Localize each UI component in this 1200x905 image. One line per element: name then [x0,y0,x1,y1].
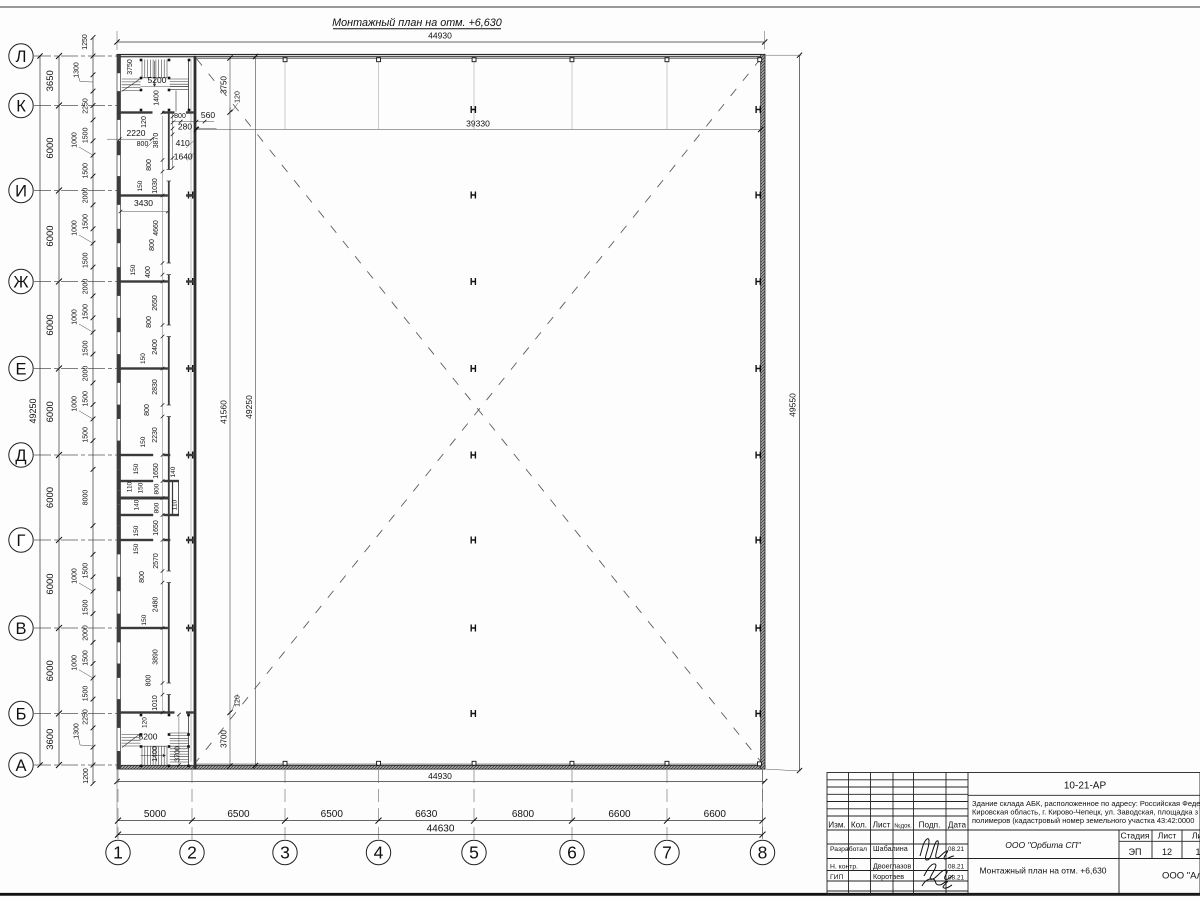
svg-text:120: 120 [235,91,242,103]
svg-text:2220: 2220 [127,128,146,138]
svg-text:1500: 1500 [82,304,89,320]
svg-text:120: 120 [141,116,148,128]
svg-text:1500: 1500 [82,252,89,268]
svg-text:ГИП: ГИП [830,874,844,881]
svg-text:280: 280 [178,122,192,132]
svg-text:8000: 8000 [82,490,89,506]
svg-text:150: 150 [133,525,140,536]
svg-text:Д: Д [15,447,26,465]
svg-text:6800: 6800 [512,809,535,820]
svg-text:А: А [15,757,26,775]
svg-text:5200: 5200 [148,75,167,85]
svg-text:6: 6 [567,843,577,863]
svg-text:2480: 2480 [153,597,160,613]
svg-text:Г: Г [17,532,26,550]
svg-text:1500: 1500 [82,391,89,407]
svg-text:1000: 1000 [72,132,79,148]
svg-text:150: 150 [137,180,144,191]
svg-text:1500: 1500 [82,600,89,616]
svg-text:800: 800 [137,141,149,148]
svg-text:49550: 49550 [788,393,798,417]
svg-text:Подп.: Подп. [919,821,941,830]
svg-text:Монтажный план на отм. +6,630: Монтажный план на отм. +6,630 [979,866,1106,876]
svg-text:800: 800 [154,502,161,513]
svg-text:Лист: Лист [1158,831,1177,841]
svg-text:140: 140 [170,466,177,477]
svg-text:120: 120 [142,717,149,728]
svg-text:1500: 1500 [82,163,89,179]
svg-text:44930: 44930 [428,31,452,41]
svg-text:1400: 1400 [154,90,161,106]
svg-text:Разработал: Разработал [830,845,867,853]
svg-text:1500: 1500 [82,563,89,579]
svg-text:39330: 39330 [466,119,490,129]
svg-text:1500: 1500 [82,686,89,702]
svg-text:08.21: 08.21 [948,864,965,871]
svg-text:6000: 6000 [45,660,56,681]
svg-text:1640: 1640 [174,152,193,162]
svg-text:800: 800 [146,316,153,328]
svg-text:800: 800 [149,239,156,251]
svg-text:150: 150 [138,482,145,493]
svg-text:2000: 2000 [82,188,89,204]
svg-text:3750: 3750 [127,59,134,75]
svg-text:1000: 1000 [72,220,79,236]
svg-text:Шабалина: Шабалина [873,844,908,853]
svg-text:1500: 1500 [82,650,89,666]
svg-text:110: 110 [127,481,134,492]
svg-text:1: 1 [1195,847,1200,857]
svg-text:ЭП: ЭП [1129,847,1142,857]
svg-text:3650: 3650 [45,70,56,91]
svg-text:8: 8 [758,843,768,863]
svg-text:1500: 1500 [82,214,89,230]
svg-text:44930: 44930 [428,771,452,781]
svg-text:10-21-АР: 10-21-АР [1064,781,1107,792]
svg-text:1: 1 [113,843,123,863]
svg-text:150: 150 [141,614,148,625]
svg-text:2570: 2570 [153,553,160,569]
svg-text:800: 800 [146,675,153,687]
svg-text:150: 150 [133,463,140,474]
svg-text:Б: Б [16,705,27,723]
svg-text:Кол.: Кол. [851,821,867,830]
svg-text:И: И [15,182,27,200]
svg-text:5: 5 [469,843,479,863]
svg-text:Лист: Лист [873,821,891,830]
svg-text:2: 2 [187,843,197,863]
svg-text:1650: 1650 [153,463,160,479]
svg-text:1010: 1010 [152,695,159,711]
svg-text:1000: 1000 [72,396,79,412]
svg-text:Дата: Дата [948,821,967,830]
svg-text:Н. контр.: Н. контр. [830,864,858,871]
svg-text:49250: 49250 [244,395,254,419]
svg-text:6600: 6600 [608,809,631,820]
svg-text:3430: 3430 [134,198,153,208]
svg-text:6000: 6000 [45,225,56,246]
svg-text:4: 4 [374,843,384,863]
svg-text:800: 800 [146,159,153,171]
svg-text:Монтажный план на отм. +6,630: Монтажный план на отм. +6,630 [332,17,502,29]
svg-text:6000: 6000 [45,314,56,335]
svg-text:150: 150 [140,436,147,447]
svg-text:7: 7 [662,843,672,863]
svg-text:5200: 5200 [139,732,158,742]
svg-text:150: 150 [140,353,147,364]
svg-text:140: 140 [134,499,141,510]
svg-text:1300: 1300 [74,723,81,739]
svg-text:6630: 6630 [415,809,438,820]
svg-text:6000: 6000 [45,573,56,594]
svg-text:560: 560 [201,110,215,120]
svg-text:Изм.: Изм. [828,821,846,830]
svg-text:Двоеглазов: Двоеглазов [873,862,911,871]
svg-text:08.21: 08.21 [948,846,965,853]
svg-text:800: 800 [174,113,186,120]
svg-text:49250: 49250 [28,398,38,423]
svg-text:800: 800 [154,483,161,494]
svg-text:2000: 2000 [82,366,89,382]
svg-text:ООО "Орбита СП": ООО "Орбита СП" [1005,840,1081,850]
svg-text:1500: 1500 [82,127,89,143]
svg-text:3700: 3700 [175,746,182,762]
svg-text:110: 110 [172,499,179,510]
svg-text:6500: 6500 [321,809,344,820]
svg-text:1000: 1000 [72,568,79,584]
svg-text:Е: Е [15,360,26,378]
svg-text:150: 150 [133,543,140,554]
svg-text:3600: 3600 [45,729,56,750]
svg-text:полимеров (кадастровый номер з: полимеров (кадастровый номер земельного … [972,816,1194,825]
svg-text:3870: 3870 [153,133,160,149]
svg-text:2230: 2230 [152,427,159,443]
svg-text:2250: 2250 [82,98,89,114]
svg-text:44630: 44630 [427,824,455,835]
svg-text:6000: 6000 [45,137,56,158]
svg-text:1030: 1030 [152,178,159,194]
svg-text:В: В [15,620,26,638]
svg-text:41560: 41560 [219,400,229,424]
svg-text:№док.: №док. [894,823,912,830]
svg-text:2000: 2000 [82,279,89,295]
svg-text:1500: 1500 [82,340,89,356]
svg-text:Ж: Ж [13,273,29,291]
svg-text:1000: 1000 [72,655,79,671]
svg-text:2000: 2000 [82,625,89,641]
svg-text:2400: 2400 [152,339,159,355]
svg-text:Коротаев: Коротаев [873,872,904,881]
svg-text:3: 3 [280,843,290,863]
svg-text:К: К [16,97,26,115]
svg-text:Л: Л [16,48,27,66]
svg-text:Ли: Ли [1192,831,1200,841]
svg-text:12: 12 [1162,847,1172,857]
svg-text:3890: 3890 [153,649,160,665]
svg-text:800: 800 [144,404,151,416]
svg-text:5000: 5000 [144,809,167,820]
svg-text:3750: 3750 [220,76,229,94]
svg-text:2830: 2830 [152,379,159,395]
svg-text:1400: 1400 [152,746,159,762]
svg-text:Стадия: Стадия [1121,831,1150,841]
svg-text:1000: 1000 [72,309,79,325]
svg-text:3700: 3700 [220,730,229,748]
svg-text:6000: 6000 [45,487,56,508]
svg-text:1250: 1250 [82,34,89,50]
svg-text:2650: 2650 [152,295,159,311]
svg-text:400: 400 [145,266,152,278]
svg-text:1650: 1650 [153,520,160,536]
svg-text:1500: 1500 [82,427,89,443]
svg-text:1300: 1300 [74,62,81,78]
svg-text:1200: 1200 [83,768,90,784]
svg-text:6600: 6600 [704,809,727,820]
svg-text:4660: 4660 [153,220,160,236]
svg-text:150: 150 [130,264,137,275]
svg-text:6500: 6500 [227,809,250,820]
svg-text:ООО "Альянс: ООО "Альянс [1162,871,1200,882]
svg-text:6000: 6000 [45,401,56,422]
svg-text:2250: 2250 [82,709,89,725]
svg-text:800: 800 [139,571,146,583]
